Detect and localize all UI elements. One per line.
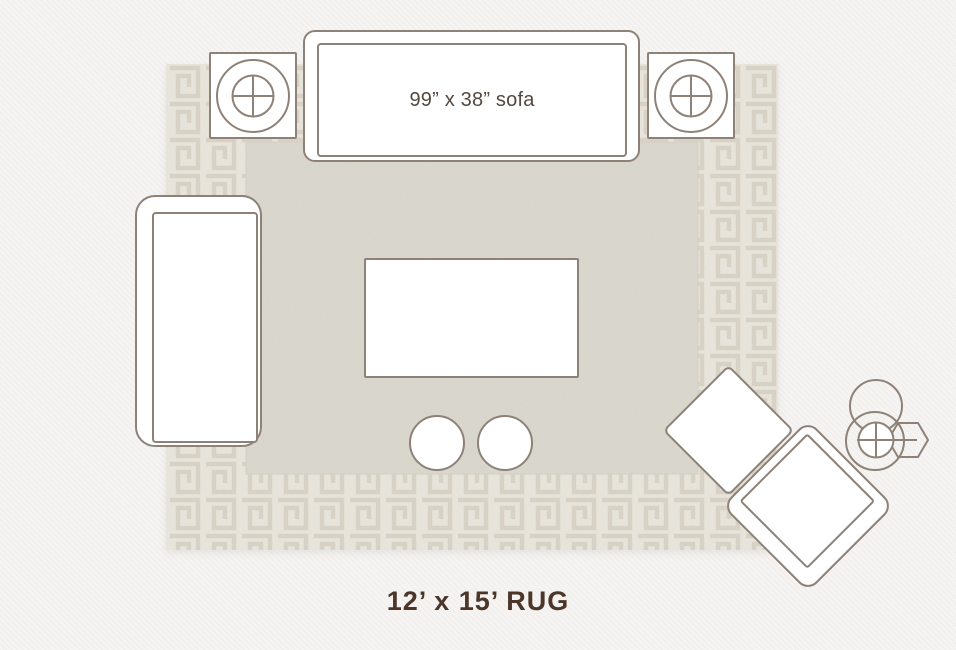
coffee-table xyxy=(364,258,579,378)
sofa: 99” x 38” sofa xyxy=(303,30,640,162)
rug-size-label: 12’ x 15’ RUG xyxy=(0,586,956,617)
sofa-size-label: 99” x 38” sofa xyxy=(409,89,534,112)
floor-lamp-table-group xyxy=(840,376,940,471)
room-plan-canvas: 99” x 38” sofa 12’ x 15’ RUG xyxy=(0,0,956,650)
chaise-lounge xyxy=(135,195,262,447)
lamp-icon xyxy=(211,54,295,138)
lamp-icon xyxy=(649,54,733,138)
pouf-left xyxy=(409,415,465,471)
side-table-left xyxy=(209,52,297,139)
side-table-right xyxy=(647,52,735,139)
chaise-seat xyxy=(152,212,258,443)
pouf-right xyxy=(477,415,533,471)
sofa-seat: 99” x 38” sofa xyxy=(317,43,627,157)
